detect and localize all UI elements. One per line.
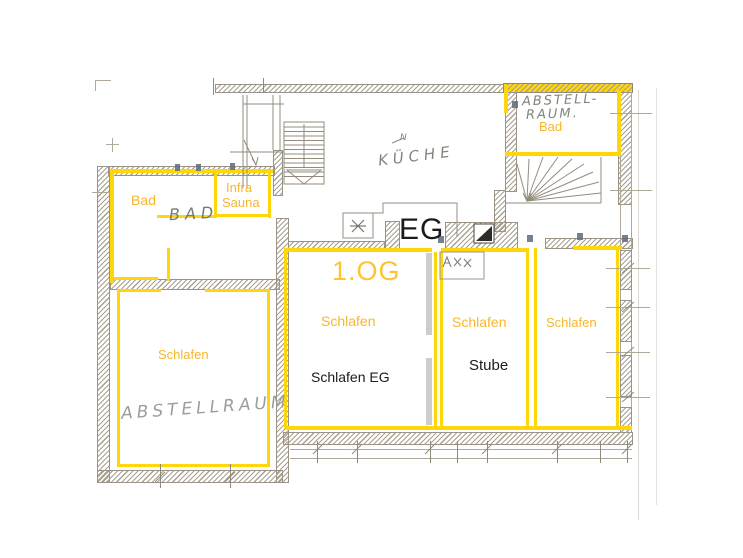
room-label-sauna: Sauna — [222, 196, 260, 210]
room-label-schlafen-center: Schlafen — [321, 314, 375, 329]
handwritten-abstellraum-og-line2: RAUM. — [526, 107, 579, 123]
staircase-winder — [505, 157, 601, 203]
room-label-schlafen-right: Schlafen — [546, 316, 597, 330]
handwritten-kueche-note: N — [400, 134, 407, 144]
chimney-flue — [474, 224, 494, 243]
pencil-scribble — [440, 252, 484, 279]
label-eg: EG — [399, 213, 444, 246]
label-1og: 1.OG — [332, 257, 401, 287]
staircase-straight — [230, 95, 324, 188]
room-label-infra: Infra — [226, 181, 252, 195]
room-label-stube: Stube — [469, 358, 508, 375]
floor-plan: EG 1.OG Bad Infra Sauna Bad Schlafen Sch… — [0, 0, 743, 558]
room-label-schlafen-lower-left: Schlafen — [158, 348, 209, 362]
room-label-bad-upper-left: Bad — [131, 193, 156, 208]
window-star-symbol — [350, 220, 366, 232]
room-label-schlafen-middle: Schlafen — [452, 315, 506, 330]
handwritten-bad: BAD — [169, 204, 219, 224]
room-label-schlafen-eg: Schlafen EG — [311, 370, 390, 385]
